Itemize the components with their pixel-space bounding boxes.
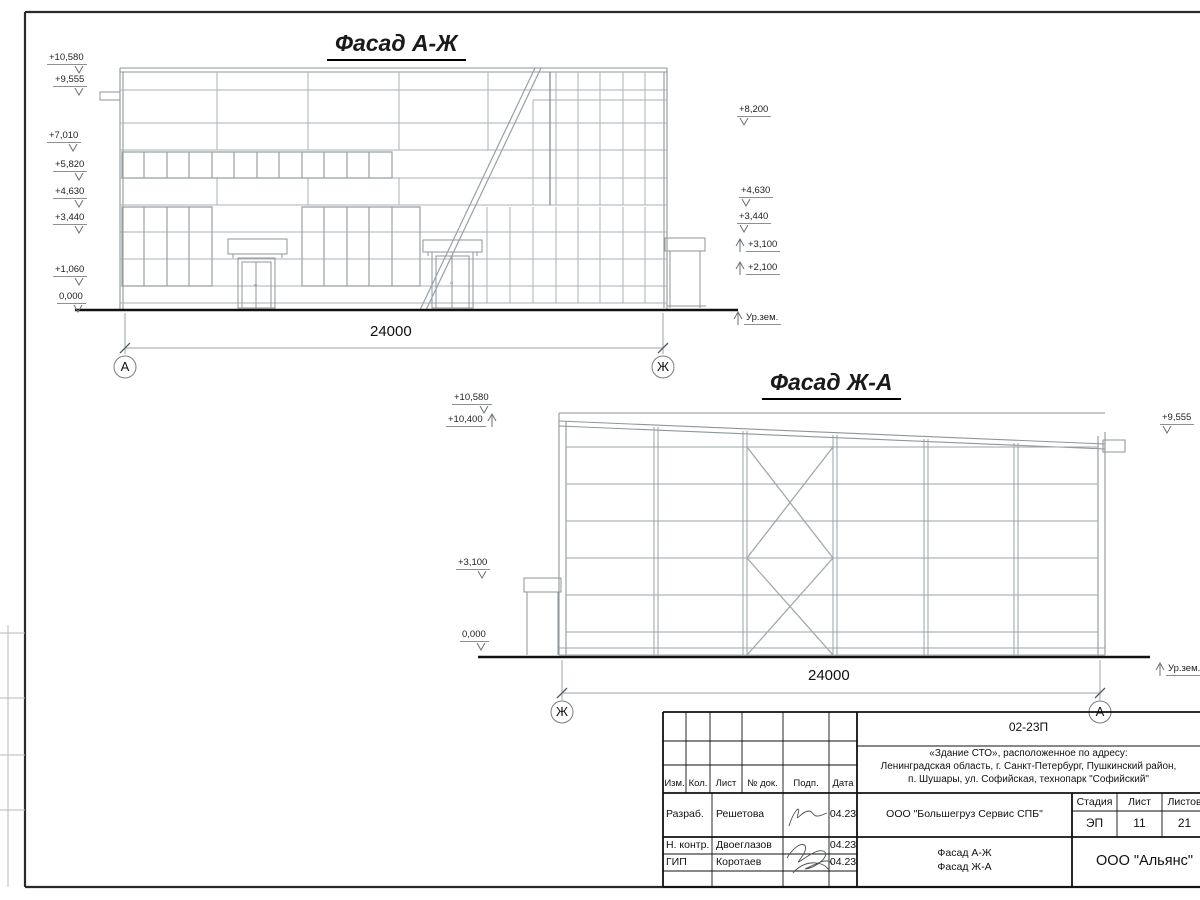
level-arrow-up-icon — [487, 413, 497, 427]
column-header-ndok: № док. — [742, 778, 783, 789]
sheets-value: 21 — [1162, 816, 1200, 830]
level-arrow-up-icon — [735, 261, 745, 275]
level-arrow-down-icon — [74, 88, 84, 96]
elevation-value: +2,100 — [746, 263, 780, 275]
elevation-mark: +3,440 — [737, 212, 771, 233]
name-developer: Решетова — [716, 808, 764, 820]
elevation-mark: +10,580 — [47, 53, 87, 74]
level-arrow-down-icon — [74, 66, 84, 74]
elevation-mark: +8,200 — [737, 105, 771, 126]
ground-level-mark: Ур.зем. — [733, 313, 781, 325]
signature-strokes — [787, 809, 832, 873]
level-arrow-down-icon — [74, 173, 84, 181]
elevation-mark: +5,820 — [53, 160, 87, 181]
facade2-title: Фасад Ж-А — [762, 369, 901, 400]
facade1-title: Фасад А-Ж — [327, 30, 466, 61]
level-arrow-down-icon — [741, 199, 751, 207]
elevation-mark: +4,630 — [739, 186, 773, 207]
level-arrow-down-icon — [477, 571, 487, 579]
elevation-value: +10,400 — [446, 415, 486, 427]
elevation-mark: +9,555 — [1160, 413, 1194, 434]
facade1-dimension: 24000 — [370, 323, 412, 340]
elevation-value: +3,440 — [53, 213, 87, 225]
elevation-mark: +7,010 — [47, 131, 81, 152]
elevation-mark: +3,440 — [53, 213, 87, 234]
column-header-list: Лист — [710, 778, 742, 789]
elevation-mark: +9,555 — [53, 75, 87, 96]
elevation-value: +9,555 — [1160, 413, 1194, 425]
column-header-kol: Кол. — [686, 778, 710, 789]
elevation-mark: +4,630 — [53, 187, 87, 208]
level-arrow-down-icon — [739, 225, 749, 233]
ground-level-label: Ур.зем. — [744, 313, 781, 325]
elevation-value: +3,440 — [737, 212, 771, 224]
level-arrow-down-icon — [68, 144, 78, 152]
facade2-axis-left: Ж — [554, 704, 570, 719]
column-header-podp: Подп. — [783, 778, 829, 789]
drawing-sheet: { "facade1": { "title": "Фасад А-Ж", "ma… — [0, 0, 1200, 900]
role-ncontrol: Н. контр. — [666, 839, 709, 851]
level-arrow-down-icon — [74, 226, 84, 234]
date-ncontrol: 04.23 — [829, 839, 857, 851]
elevation-value: +4,630 — [53, 187, 87, 199]
elevation-value: +3,100 — [746, 240, 780, 252]
client-name: ООО "Большегруз Сервис СПБ" — [857, 808, 1072, 820]
doc-number: 02-23П — [857, 720, 1200, 734]
project-address-line3: п. Шушары, ул. Софийская, технопарк "Соф… — [860, 774, 1197, 785]
elevation-mark: +3,100 — [456, 558, 490, 579]
elevation-value: +3,100 — [456, 558, 490, 570]
date-gip: 04.23 — [829, 856, 857, 868]
level-arrow-down-icon — [74, 278, 84, 286]
role-gip: ГИП — [666, 856, 687, 868]
name-gip: Коротаев — [716, 856, 761, 868]
level-arrow-up-icon — [735, 238, 745, 252]
level-arrow-down-icon — [739, 118, 749, 126]
elevation-value: +1,060 — [53, 265, 87, 277]
elevation-value: 0,000 — [460, 630, 489, 642]
drawing-name-line2: Фасад Ж-А — [857, 861, 1072, 873]
company-name: ООО "Альянс" — [1072, 853, 1200, 869]
column-header-data: Дата — [829, 778, 857, 789]
left-strip — [0, 625, 25, 887]
elevation-mark: +10,580 — [452, 393, 492, 414]
elevation-mark: 0,000 — [57, 292, 86, 313]
drawing-name-line1: Фасад А-Ж — [857, 847, 1072, 859]
elevation-value: +10,580 — [452, 393, 492, 405]
level-arrow-up-icon — [1155, 662, 1165, 676]
ground-level-label: Ур.зем. — [1166, 664, 1200, 676]
elevation-value: 0,000 — [57, 292, 86, 304]
elevation-value: +8,200 — [737, 105, 771, 117]
level-arrow-down-icon — [476, 643, 486, 651]
project-address-line2: Ленинградская область, г. Санкт-Петербур… — [860, 761, 1197, 772]
level-arrow-down-icon — [1162, 426, 1172, 434]
facade1-axis-right: Ж — [655, 359, 671, 374]
elevation-value: +4,630 — [739, 186, 773, 198]
stage-value: ЭП — [1072, 816, 1117, 830]
stage-label: Стадия — [1072, 796, 1117, 808]
name-ncontrol: Двоеглазов — [716, 839, 772, 851]
elevation-value: +9,555 — [53, 75, 87, 87]
elevation-value: +10,580 — [47, 53, 87, 65]
level-arrow-down-icon — [73, 305, 83, 313]
elevation-mark: +3,100 — [735, 240, 780, 252]
sheet-label: Лист — [1117, 796, 1162, 808]
facade2-axis-right: А — [1092, 704, 1108, 719]
level-arrow-down-icon — [74, 200, 84, 208]
date-developer: 04.23 — [829, 808, 857, 820]
facade2-dimension: 24000 — [808, 667, 850, 684]
sheets-label: Листов — [1162, 796, 1200, 808]
role-developer: Разраб. — [666, 808, 704, 820]
column-header-izm: Изм. — [663, 778, 686, 789]
elevation-mark: +2,100 — [735, 263, 780, 275]
project-address-line1: «Здание СТО», расположенное по адресу: — [860, 748, 1197, 759]
elevation-value: +5,820 — [53, 160, 87, 172]
elevation-mark: +1,060 — [53, 265, 87, 286]
level-arrow-up-icon — [733, 311, 743, 325]
elevation-mark: 0,000 — [460, 630, 489, 651]
ground-level-mark: Ур.зем. — [1155, 664, 1200, 676]
elevation-value: +7,010 — [47, 131, 81, 143]
facade1-axis-left: А — [117, 359, 133, 374]
elevation-mark: +10,400 — [446, 415, 497, 427]
sheet-value: 11 — [1117, 816, 1162, 830]
